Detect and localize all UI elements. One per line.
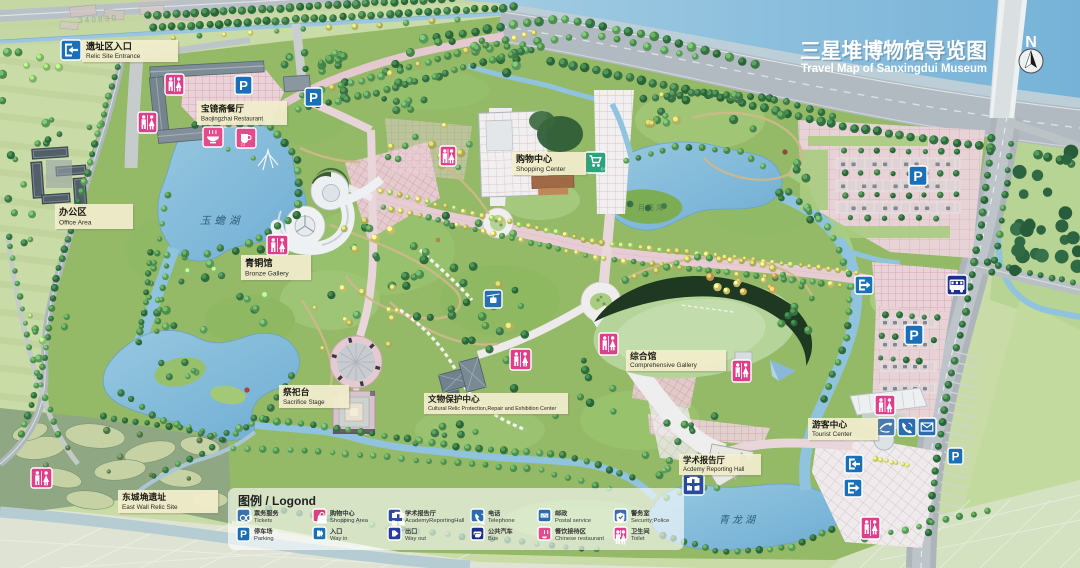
svg-text:Shopping Area: Shopping Area: [330, 518, 369, 524]
svg-text:Acdemy Reporting Hall: Acdemy Reporting Hall: [683, 467, 744, 473]
svg-text:Chinese restaurant: Chinese restaurant: [555, 536, 604, 542]
svg-text:游客中心: 游客中心: [812, 419, 847, 430]
svg-text:购物中心: 购物中心: [516, 153, 552, 164]
svg-text:Telephone: Telephone: [488, 518, 515, 524]
svg-text:AcademyReportingHall: AcademyReportingHall: [405, 518, 464, 524]
svg-text:学术报告厅: 学术报告厅: [683, 455, 725, 465]
svg-text:Cultural Relic Protection,Repa: Cultural Relic Protection,Repair and Exh…: [428, 406, 556, 412]
svg-text:Way out: Way out: [405, 536, 426, 542]
svg-text:青龙湖: 青龙湖: [719, 514, 758, 526]
svg-text:Baojingzhai Restaurant: Baojingzhai Restaurant: [201, 117, 263, 123]
svg-text:邮政: 邮政: [555, 510, 568, 518]
svg-text:P: P: [909, 327, 918, 343]
svg-text:青铜馆: 青铜馆: [245, 257, 273, 268]
svg-text:玉蟾湖: 玉蟾湖: [200, 215, 244, 227]
svg-text:东城埆遗址: 东城埆遗址: [122, 491, 166, 502]
svg-text:P: P: [309, 90, 318, 105]
svg-text:购物中心: 购物中心: [330, 510, 356, 518]
svg-text:Postal service: Postal service: [555, 518, 591, 524]
svg-text:Bronze Gallery: Bronze Gallery: [245, 271, 289, 278]
svg-text:P: P: [239, 78, 248, 93]
svg-text:文物保护中心: 文物保护中心: [427, 393, 480, 404]
svg-text:宝镜斋餐厅: 宝镜斋餐厅: [201, 103, 244, 114]
svg-text:Comprehensive Gallery: Comprehensive Gallery: [630, 362, 698, 369]
svg-text:Toilet: Toilet: [631, 536, 645, 542]
svg-text:Tickets: Tickets: [254, 518, 272, 524]
svg-text:Bus: Bus: [488, 536, 498, 542]
svg-text:P: P: [952, 450, 960, 463]
svg-text:餐饮接待区: 餐饮接待区: [555, 528, 587, 536]
svg-text:N: N: [1025, 34, 1037, 51]
svg-text:办公区: 办公区: [59, 206, 87, 217]
svg-text:三星堆博物馆导览图: 三星堆博物馆导览图: [800, 39, 987, 63]
svg-text:Sacrifice Stage: Sacrifice Stage: [283, 399, 325, 406]
svg-text:遗址区入口: 遗址区入口: [85, 41, 132, 52]
svg-text:Travel Map of Sanxingdui Museu: Travel Map of Sanxingdui Museum: [801, 61, 987, 75]
svg-text:公共汽车: 公共汽车: [488, 528, 513, 536]
svg-text:出口: 出口: [405, 528, 417, 536]
svg-text:学术报告厅: 学术报告厅: [405, 510, 437, 518]
svg-text:Parking: Parking: [254, 536, 274, 542]
svg-text:East Wall Relic Site: East Wall Relic Site: [122, 504, 178, 511]
svg-text:综合馆: 综合馆: [630, 350, 657, 361]
svg-text:图例 / Logond: 图例 / Logond: [238, 493, 316, 508]
svg-text:Tourist Center: Tourist Center: [812, 431, 853, 438]
svg-text:入口: 入口: [329, 529, 342, 536]
svg-text:Office Area: Office Area: [59, 220, 92, 227]
svg-text:Shopping Center: Shopping Center: [516, 166, 566, 173]
svg-text:电话: 电话: [488, 510, 501, 518]
svg-text:P: P: [913, 168, 922, 184]
svg-text:警务室: 警务室: [630, 510, 650, 518]
svg-text:P: P: [240, 530, 247, 541]
svg-text:64: 64: [601, 167, 607, 172]
svg-text:卫生间: 卫生间: [631, 528, 650, 536]
svg-text:票务服务: 票务服务: [254, 510, 280, 518]
svg-text:月亮湾: 月亮湾: [638, 203, 665, 212]
svg-text:停车场: 停车场: [254, 528, 273, 536]
svg-text:Security;Police: Security;Police: [631, 518, 669, 524]
svg-text:24: 24: [241, 142, 246, 147]
svg-text:Way in: Way in: [330, 536, 348, 542]
svg-text:Relic Site Entrance: Relic Site Entrance: [86, 53, 141, 60]
svg-text:祭祀台: 祭祀台: [282, 386, 310, 397]
